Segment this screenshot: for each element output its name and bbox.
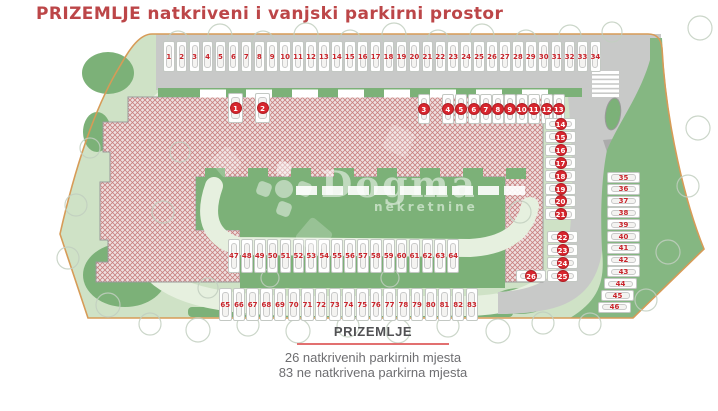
parking-stall: 42: [607, 255, 640, 266]
stall-number: 51: [281, 252, 291, 260]
stall-number: 80: [426, 301, 436, 309]
covered-parking-stall: 7: [480, 94, 492, 124]
parking-stall: 70: [288, 288, 301, 321]
covered-parking-stall: 20: [545, 195, 576, 207]
parking-stall: 32: [564, 41, 576, 72]
stall-number: 7: [244, 53, 249, 61]
legend-divider: [297, 343, 449, 345]
parking-stall: 46: [598, 302, 631, 313]
stall-number: 10: [280, 53, 290, 61]
stall-number: 44: [616, 280, 626, 288]
stall-number: 62: [423, 252, 433, 260]
parking-stall: 38: [607, 207, 640, 218]
stall-number: 20: [410, 53, 420, 61]
parking-stall: 9: [266, 41, 278, 72]
parking-stall: 26: [486, 41, 498, 72]
parking-stall: 18: [383, 41, 395, 72]
covered-parking-stall: 3: [418, 94, 430, 124]
parking-stall: 49: [254, 239, 266, 273]
covered-stall-badge: 24: [557, 257, 569, 269]
covered-stall-badge: 11: [528, 103, 540, 115]
parking-stall: 39: [607, 219, 640, 230]
covered-stall-badge: 8: [492, 103, 504, 115]
stall-number: 8: [257, 53, 262, 61]
stall-number: 36: [619, 185, 629, 193]
covered-parking-stall: 16: [545, 144, 576, 156]
covered-stall-badge: 25: [557, 270, 569, 282]
stall-number: 58: [371, 252, 381, 260]
stall-number: 13: [319, 53, 329, 61]
parking-stall: 69: [274, 288, 287, 321]
parking-stall: 54: [318, 239, 330, 273]
covered-stall-badge: 17: [555, 157, 567, 169]
parking-stall: 15: [344, 41, 356, 72]
parking-stall: 12: [305, 41, 317, 72]
parking-stall: 3: [189, 41, 201, 72]
stall-number: 27: [500, 53, 510, 61]
parking-stall: 34: [590, 41, 602, 72]
covered-stall-badge: 1: [230, 102, 242, 114]
covered-stall-badge: 21: [555, 208, 567, 220]
stall-number: 21: [422, 53, 432, 61]
legend-heading: PRIZEMLJE: [244, 324, 502, 339]
parking-stall: 22: [435, 41, 447, 72]
stall-number: 82: [453, 301, 463, 309]
covered-stall-badge: 23: [557, 244, 569, 256]
covered-parking-stall: 8: [492, 94, 504, 124]
parking-stall: 11: [292, 41, 304, 72]
parking-stall: 8: [254, 41, 266, 72]
stall-number: 6: [231, 53, 236, 61]
stall-number: 57: [358, 252, 368, 260]
stall-number: 59: [384, 252, 394, 260]
stall-number: 71: [303, 301, 313, 309]
stall-number: 61: [410, 252, 420, 260]
covered-stall-badge: 5: [455, 103, 467, 115]
page-title: PRIZEMLJE natkriveni i vanjski parkirni …: [36, 4, 503, 24]
parking-stall: 63: [434, 239, 446, 273]
stall-number: 24: [461, 53, 471, 61]
parking-stall: 60: [396, 239, 408, 273]
parking-stall: 25: [473, 41, 485, 72]
stall-number: 33: [578, 53, 588, 61]
parking-stall: 44: [604, 278, 637, 289]
stall-number: 25: [474, 53, 484, 61]
stall-number: 38: [619, 209, 629, 217]
parking-stall: 2: [176, 41, 188, 72]
stall-number: 60: [397, 252, 407, 260]
stall-number: 42: [619, 256, 629, 264]
parking-stall: 81: [438, 288, 451, 321]
stall-number: 69: [275, 301, 285, 309]
parking-stall: 82: [452, 288, 465, 321]
parking-stall: 67: [246, 288, 259, 321]
covered-stall-badge: 7: [480, 103, 492, 115]
stall-number: 76: [371, 301, 381, 309]
stall-number: 49: [255, 252, 265, 260]
stall-number: 40: [619, 233, 629, 241]
parking-stall: 41: [607, 243, 640, 254]
parking-stall: 19: [396, 41, 408, 72]
parking-stall: 30: [538, 41, 550, 72]
stall-number: 46: [610, 303, 620, 311]
stall-number: 22: [435, 53, 445, 61]
site-plan-page: PRIZEMLJE natkriveni i vanjski parkirni …: [0, 0, 718, 411]
parking-stall: 61: [409, 239, 421, 273]
stall-number: 74: [344, 301, 354, 309]
parking-stall: 4: [202, 41, 214, 72]
stall-number: 26: [487, 53, 497, 61]
stall-number: 35: [619, 174, 629, 182]
stall-number: 47: [229, 252, 239, 260]
parking-stall: 55: [331, 239, 343, 273]
stall-number: 11: [293, 53, 303, 61]
covered-parking-stall: 14: [545, 118, 576, 130]
parking-stall: 74: [342, 288, 355, 321]
stall-number: 5: [218, 53, 223, 61]
stall-number: 39: [619, 221, 629, 229]
parking-stall: 47: [228, 239, 240, 273]
parking-stall: 1: [163, 41, 175, 72]
covered-stall-badge: 13: [553, 103, 565, 115]
stall-number: 77: [385, 301, 395, 309]
legend-covered-count: 26 natkrivenih parkirnih mjesta: [244, 350, 502, 365]
stall-number: 79: [412, 301, 422, 309]
parking-stall: 37: [607, 196, 640, 207]
stall-number: 68: [261, 301, 271, 309]
parking-stall: 7: [241, 41, 253, 72]
parking-stall: 14: [331, 41, 343, 72]
covered-parking-stall: 17: [545, 157, 576, 169]
parking-stall: 23: [447, 41, 459, 72]
parking-stall: 58: [370, 239, 382, 273]
parking-stall: 31: [551, 41, 563, 72]
parking-stall: 71: [301, 288, 314, 321]
stall-number: 81: [440, 301, 450, 309]
parking-stall: 53: [305, 239, 317, 273]
stall-number: 65: [220, 301, 230, 309]
parking-stall: 10: [279, 41, 291, 72]
parking-stall: 6: [228, 41, 240, 72]
covered-stall-badge: 15: [555, 131, 567, 143]
covered-parking-stall: 11: [528, 94, 540, 124]
stall-number: 55: [332, 252, 342, 260]
stall-number: 15: [345, 53, 355, 61]
covered-parking-stall: 19: [545, 183, 576, 195]
stall-number: 28: [513, 53, 523, 61]
stall-number: 53: [306, 252, 316, 260]
stall-number: 3: [192, 53, 197, 61]
parking-stall: 72: [315, 288, 328, 321]
stall-number: 12: [306, 53, 316, 61]
parking-stall: 27: [499, 41, 511, 72]
stall-number: 45: [613, 292, 623, 300]
parking-stall: 68: [260, 288, 273, 321]
parking-stall: 65: [219, 288, 232, 321]
covered-parking-stall: 23: [547, 244, 578, 256]
stall-number: 32: [565, 53, 575, 61]
stall-number: 16: [358, 53, 368, 61]
parking-stall: 56: [344, 239, 356, 273]
stall-number: 78: [398, 301, 408, 309]
stall-number: 54: [319, 252, 329, 260]
stall-number: 73: [330, 301, 340, 309]
stall-number: 2: [179, 53, 184, 61]
covered-stall-badge: 9: [504, 103, 516, 115]
covered-stall-badge: 12: [541, 103, 553, 115]
parking-stall: 33: [577, 41, 589, 72]
parking-stall: 59: [383, 239, 395, 273]
parking-stall: 62: [422, 239, 434, 273]
stall-number: 63: [435, 252, 445, 260]
parking-stall: 78: [397, 288, 410, 321]
parking-stall: 21: [422, 41, 434, 72]
covered-parking-stall: 21: [545, 208, 576, 220]
stall-number: 4: [205, 53, 210, 61]
stall-number: 29: [526, 53, 536, 61]
covered-parking-stall: 10: [516, 94, 528, 124]
parking-stall: 64: [447, 239, 459, 273]
parking-stall: 5: [215, 41, 227, 72]
covered-stall-badge: 18: [555, 170, 567, 182]
stall-number: 30: [539, 53, 549, 61]
parking-stall: 43: [607, 266, 640, 277]
parking-stall: 83: [466, 288, 479, 321]
parking-stall: 73: [329, 288, 342, 321]
parking-stall: 79: [411, 288, 424, 321]
legend: PRIZEMLJE 26 natkrivenih parkirnih mjest…: [244, 324, 502, 380]
stall-number: 17: [371, 53, 381, 61]
stall-number: 52: [294, 252, 304, 260]
parking-stall: 75: [356, 288, 369, 321]
covered-stall-badge: 20: [555, 195, 567, 207]
stall-number: 19: [397, 53, 407, 61]
stall-number: 83: [467, 301, 477, 309]
covered-parking-stall: 22: [547, 231, 578, 243]
stall-number: 43: [619, 268, 629, 276]
covered-parking-stall: 9: [504, 94, 516, 124]
stall-number: 41: [619, 244, 629, 252]
parking-stall: 80: [425, 288, 438, 321]
legend-uncovered-count: 83 ne natkrivena parkirna mjesta: [244, 365, 502, 380]
covered-stall-badge: 19: [555, 183, 567, 195]
covered-stall-badge: 2: [257, 102, 269, 114]
covered-stall-badge: 4: [442, 103, 454, 115]
stall-number: 14: [332, 53, 342, 61]
parking-stall: 17: [370, 41, 382, 72]
covered-stall-badge: 22: [557, 231, 569, 243]
parking-stall: 13: [318, 41, 330, 72]
covered-parking-stall: 2: [255, 93, 270, 123]
parking-stall: 51: [280, 239, 292, 273]
stall-number: 70: [289, 301, 299, 309]
parking-stall: 52: [293, 239, 305, 273]
covered-parking-stall: 5: [455, 94, 467, 124]
parking-stall: 28: [512, 41, 524, 72]
parking-stall: 77: [383, 288, 396, 321]
parking-stall: 16: [357, 41, 369, 72]
parking-stall: 48: [241, 239, 253, 273]
stall-number: 31: [552, 53, 562, 61]
covered-stall-badge: 10: [516, 103, 528, 115]
stall-number: 48: [242, 252, 252, 260]
stall-number: 64: [448, 252, 458, 260]
stall-number: 23: [448, 53, 458, 61]
parking-stall: 76: [370, 288, 383, 321]
parking-stall: 35: [607, 172, 640, 183]
covered-parking-stall: 26: [516, 270, 546, 282]
stall-number: 1: [166, 53, 171, 61]
covered-parking-stall: 15: [545, 131, 576, 143]
parking-stall: 50: [267, 239, 279, 273]
stall-number: 34: [591, 53, 601, 61]
covered-parking-stall: 18: [545, 170, 576, 182]
stall-number: 56: [345, 252, 355, 260]
parking-stall: 66: [233, 288, 246, 321]
stall-number: 72: [316, 301, 326, 309]
covered-parking-stall: 6: [468, 94, 480, 124]
covered-parking-stall: 4: [442, 94, 454, 124]
parking-stall: 36: [607, 184, 640, 195]
parking-stall: 24: [460, 41, 472, 72]
covered-parking-stall: 24: [547, 257, 578, 269]
covered-stall-badge: 6: [468, 103, 480, 115]
parking-stall: 57: [357, 239, 369, 273]
covered-stall-badge: 16: [555, 144, 567, 156]
parking-stall: 29: [525, 41, 537, 72]
stall-number: 50: [268, 252, 278, 260]
covered-parking-stall: 1: [228, 93, 243, 123]
covered-stall-badge: 26: [525, 270, 537, 282]
parking-stall: 40: [607, 231, 640, 242]
parking-stall: 45: [601, 290, 634, 301]
stall-number: 18: [384, 53, 394, 61]
stall-number: 66: [234, 301, 244, 309]
stall-number: 67: [248, 301, 258, 309]
stall-number: 75: [357, 301, 367, 309]
covered-stall-badge: 14: [555, 118, 567, 130]
stall-number: 37: [619, 197, 629, 205]
parking-stall: 20: [409, 41, 421, 72]
covered-stall-badge: 3: [418, 103, 430, 115]
stall-number: 9: [270, 53, 275, 61]
covered-parking-stall: 25: [547, 270, 578, 282]
